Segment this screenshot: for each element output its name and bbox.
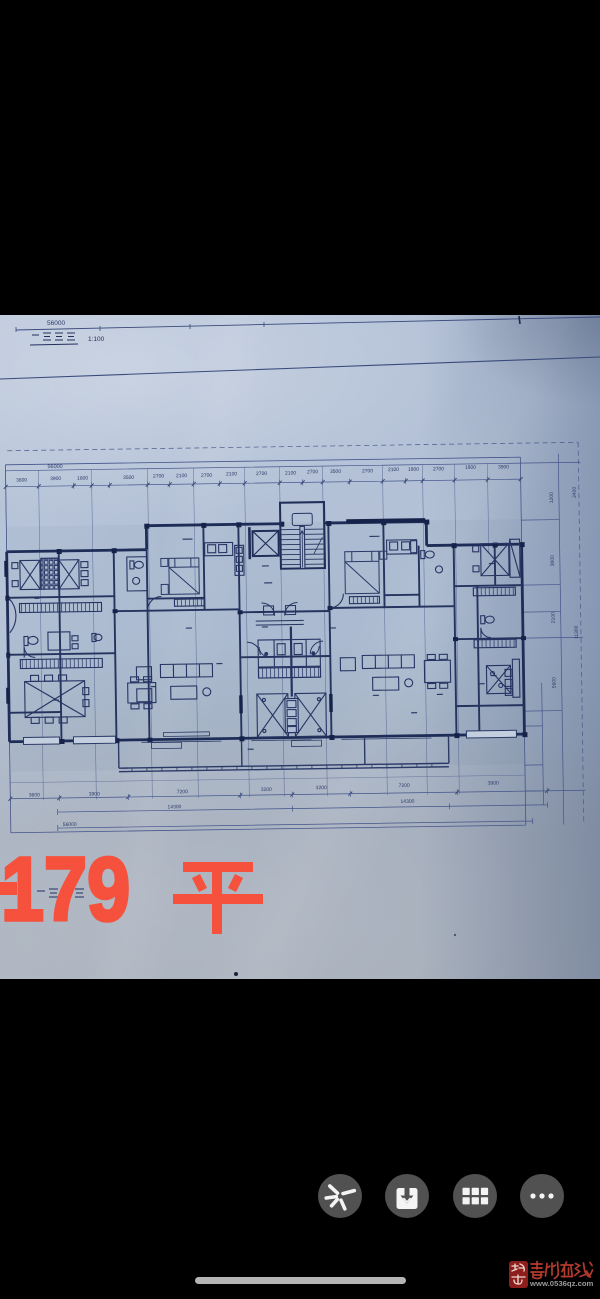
svg-text:2700: 2700 [362, 468, 373, 474]
svg-text:14300: 14300 [167, 804, 181, 810]
svg-text:3900: 3900 [89, 791, 100, 797]
svg-text:1200: 1200 [549, 492, 555, 503]
svg-text:2700: 2700 [433, 466, 444, 472]
svg-text:1800: 1800 [77, 476, 88, 482]
svg-text:2100: 2100 [226, 471, 237, 477]
svg-text:3200: 3200 [316, 785, 327, 791]
svg-text:1800: 1800 [408, 467, 419, 473]
svg-text:3500: 3500 [330, 469, 341, 475]
svg-text:14300: 14300 [400, 799, 414, 805]
svg-text:2100: 2100 [388, 467, 399, 473]
svg-text:2700: 2700 [307, 469, 318, 475]
svg-text:2100: 2100 [551, 612, 557, 623]
svg-text:3900: 3900 [498, 464, 509, 470]
svg-text:5600: 5600 [552, 677, 558, 688]
svg-text:2100: 2100 [285, 470, 296, 476]
svg-text:3600: 3600 [16, 477, 27, 483]
svg-text:3600: 3600 [550, 555, 556, 566]
svg-text:1:100: 1:100 [88, 336, 105, 343]
svg-text:7200: 7200 [399, 783, 410, 789]
svg-text:www.0536qz.com: www.0536qz.com [529, 1279, 594, 1288]
svg-text:2700: 2700 [153, 473, 164, 479]
svg-text:3900: 3900 [488, 781, 499, 787]
svg-text:56000: 56000 [63, 822, 77, 828]
svg-text:3500: 3500 [123, 475, 134, 481]
svg-text:2100: 2100 [176, 473, 187, 479]
svg-text:3600: 3600 [29, 792, 40, 798]
svg-text:56000: 56000 [47, 464, 62, 470]
svg-text:2700: 2700 [201, 473, 212, 479]
svg-text:11300: 11300 [574, 625, 580, 639]
svg-text:2700: 2700 [256, 471, 267, 477]
svg-text:2400: 2400 [572, 487, 578, 498]
svg-text:3900: 3900 [50, 476, 61, 482]
svg-text:56000: 56000 [47, 320, 65, 327]
svg-text:7200: 7200 [177, 789, 188, 795]
svg-text:1800: 1800 [465, 465, 476, 471]
svg-text:3200: 3200 [261, 787, 272, 793]
